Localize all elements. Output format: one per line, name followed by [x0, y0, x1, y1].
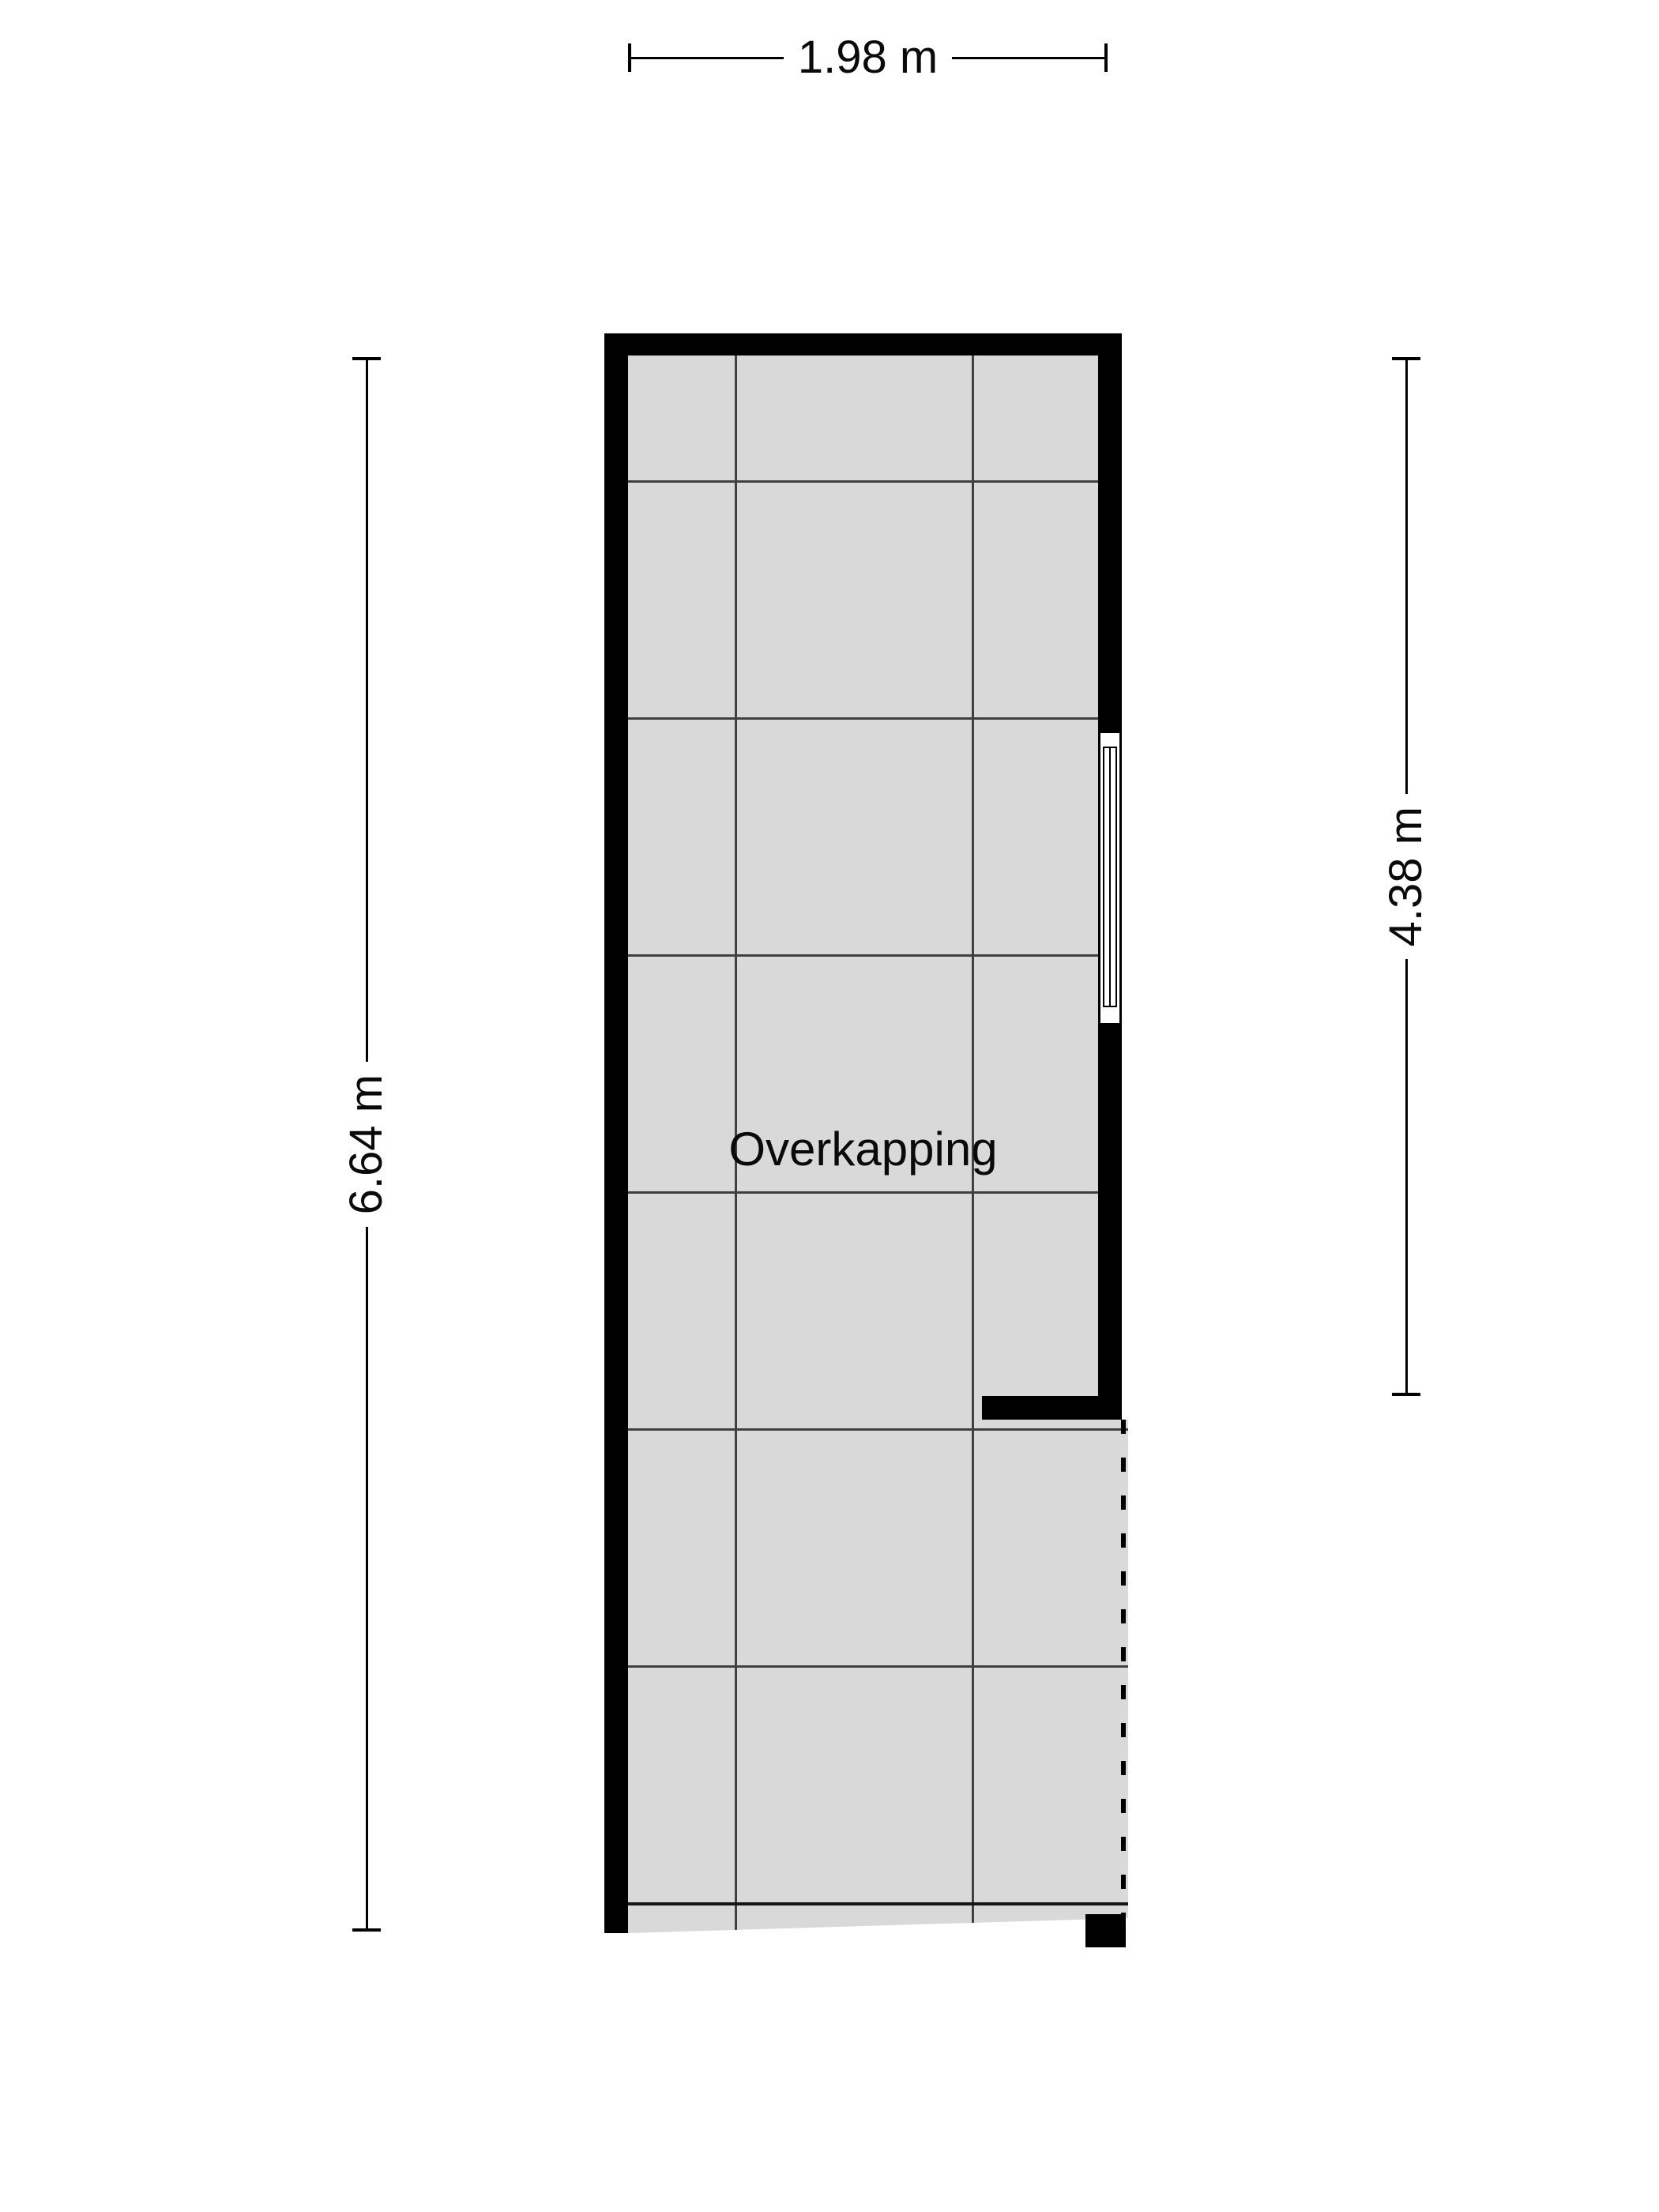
- dimension-tick-bottom: [1392, 1393, 1420, 1396]
- dimension-line-lower-segment: [1405, 959, 1408, 1393]
- dimension-label-height-left: 6.64 m: [344, 1074, 389, 1214]
- tile-grid-line-horizontal: [628, 954, 1128, 957]
- dimension-height-left: 6.64 m: [353, 357, 380, 1932]
- wall-top: [604, 333, 1122, 355]
- tile-grid-line-horizontal: [628, 1665, 1128, 1668]
- wall-left: [604, 333, 628, 1933]
- dimension-line-upper-segment: [1405, 360, 1408, 794]
- room-label: Overkapping: [628, 1120, 1098, 1179]
- open-boundary-dashed-line: [1121, 1420, 1126, 1914]
- tile-grid-line-horizontal: [628, 1428, 1128, 1431]
- tile-grid-line-horizontal-strong: [628, 1902, 1128, 1905]
- dimension-tick-bottom: [352, 1928, 381, 1932]
- tile-grid-line-horizontal: [628, 480, 1128, 483]
- dimension-height-right: 4.38 m: [1393, 357, 1420, 1396]
- wall-right-lower: [1098, 1025, 1122, 1420]
- dimension-line-left-segment: [631, 57, 784, 59]
- tile-grid-line-horizontal: [628, 1191, 1128, 1194]
- window-glass-icon: [1103, 747, 1117, 1007]
- dimension-tick-right: [1104, 43, 1108, 72]
- wall-right-upper: [1098, 333, 1122, 731]
- dimension-label-height-right: 4.38 m: [1383, 807, 1429, 946]
- wall-return-inner: [982, 1396, 1122, 1420]
- window-symbol: [1098, 731, 1122, 1025]
- wall-post: [1085, 1914, 1126, 1947]
- dimension-label-width: 1.98 m: [784, 35, 952, 81]
- tile-grid-line-horizontal: [628, 717, 1128, 720]
- dimension-width-top: 1.98 m: [628, 32, 1108, 84]
- dimension-line-upper-segment: [366, 360, 368, 1062]
- dimension-line-lower-segment: [366, 1227, 368, 1928]
- window-mullion-line: [1109, 748, 1111, 1006]
- dimension-line-right-segment: [952, 57, 1104, 59]
